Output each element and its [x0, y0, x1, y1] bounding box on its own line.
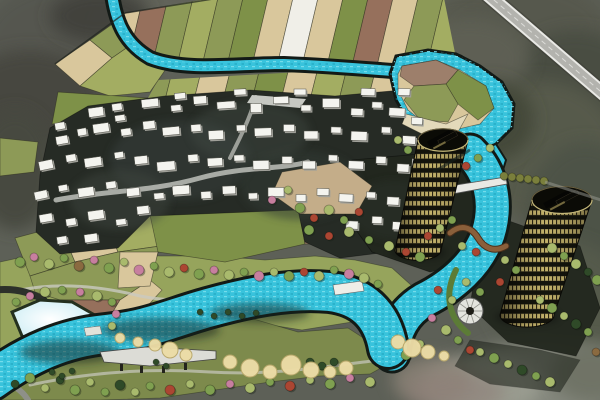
massing-building: [207, 158, 224, 168]
tree: [194, 269, 204, 279]
tree: [180, 264, 188, 272]
tree: [211, 313, 217, 319]
tree: [532, 372, 540, 380]
building-roof: [294, 89, 306, 95]
tree: [300, 268, 308, 276]
massing-building: [222, 186, 237, 196]
massing-building: [372, 216, 384, 225]
tree: [424, 232, 432, 240]
massing-building: [361, 88, 377, 97]
building-roof: [84, 233, 98, 243]
building-roof: [234, 89, 246, 96]
massing-building: [208, 130, 225, 141]
tree: [325, 232, 333, 240]
tree: [41, 384, 49, 392]
tree: [462, 278, 470, 286]
building-roof: [87, 209, 104, 220]
building-roof: [282, 157, 292, 164]
building-roof: [188, 154, 198, 162]
tree: [517, 365, 527, 375]
building-roof: [54, 122, 65, 131]
tree: [86, 378, 94, 386]
pavilion-core: [466, 307, 474, 315]
building-roof: [222, 186, 235, 194]
building-roof: [55, 135, 68, 145]
tree: [12, 298, 20, 306]
building-roof: [402, 136, 415, 145]
tree: [584, 328, 592, 336]
tree: [69, 368, 75, 374]
building-roof: [174, 93, 185, 100]
building-roof: [303, 161, 316, 169]
tree: [225, 309, 231, 315]
massing-building: [348, 161, 365, 171]
tree: [210, 266, 218, 274]
tree: [25, 373, 35, 383]
building-roof: [114, 151, 124, 158]
tree: [11, 380, 19, 388]
building-roof: [106, 181, 117, 189]
tree: [486, 144, 494, 152]
tree: [489, 353, 499, 363]
tree: [150, 262, 158, 270]
tree: [197, 309, 203, 315]
tree: [115, 380, 125, 390]
building-roof: [372, 216, 382, 223]
massing-building: [254, 128, 273, 138]
tree: [163, 363, 169, 369]
building-roof: [92, 122, 109, 133]
tree: [284, 271, 294, 281]
tree: [547, 303, 557, 313]
massing-building: [193, 95, 208, 106]
tree: [560, 252, 568, 260]
render-viewport[interactable]: [0, 0, 600, 400]
tree: [415, 252, 425, 262]
building-roof: [116, 218, 127, 225]
tree-canopy-plaza: [115, 333, 125, 343]
massing-building: [172, 185, 191, 197]
massing-building: [376, 156, 388, 165]
massing-building: [143, 120, 157, 131]
tree: [40, 287, 50, 297]
tree: [500, 172, 508, 180]
massing-building: [250, 103, 263, 114]
tree: [454, 336, 462, 344]
tree: [536, 296, 544, 304]
massing-building: [303, 161, 317, 171]
massing-building: [381, 127, 392, 135]
building-roof: [351, 131, 367, 141]
massing-building: [389, 108, 407, 118]
building-roof: [171, 104, 182, 111]
building-roof: [301, 105, 311, 111]
building-roof: [381, 127, 390, 133]
building-roof: [234, 155, 244, 161]
building-roof: [398, 88, 410, 96]
tree: [496, 278, 504, 286]
massing-building: [323, 99, 341, 110]
massing-building: [134, 155, 149, 166]
building-roof: [121, 128, 132, 136]
tree: [436, 224, 444, 232]
building-roof: [58, 184, 68, 191]
building-roof: [112, 103, 123, 111]
tree: [532, 176, 540, 184]
tree: [365, 236, 373, 244]
tree: [239, 313, 245, 319]
building-roof: [323, 99, 340, 108]
tree: [365, 377, 375, 387]
building-roof: [366, 192, 375, 198]
building-roof: [411, 117, 422, 125]
tree: [344, 269, 354, 279]
tree: [501, 256, 509, 264]
tree: [466, 346, 474, 354]
tree-canopy-plaza: [180, 349, 192, 361]
tree-canopy-plaza: [303, 362, 319, 378]
massing-building: [398, 88, 412, 97]
tree: [428, 314, 436, 322]
building-roof: [208, 130, 223, 140]
building-roof: [207, 158, 222, 167]
tree-canopy-plaza: [149, 339, 161, 351]
massing-building: [248, 193, 259, 201]
tree: [472, 248, 480, 256]
massing-building: [141, 98, 160, 109]
building-roof: [339, 194, 353, 202]
massing-building: [137, 205, 151, 216]
tree: [560, 312, 568, 320]
building-roof: [389, 108, 405, 117]
massing-building: [366, 192, 377, 200]
massing-building: [157, 161, 177, 173]
tree: [325, 379, 335, 389]
tree: [44, 259, 54, 269]
small-deck: [84, 326, 102, 336]
building-roof: [331, 127, 341, 133]
tree: [508, 173, 516, 181]
massing-building: [301, 105, 312, 113]
tree: [254, 271, 264, 281]
tree: [384, 241, 394, 251]
building-roof: [88, 106, 104, 117]
massing-building: [351, 108, 365, 117]
tree: [60, 254, 68, 262]
tree: [314, 271, 324, 281]
tree: [101, 388, 109, 396]
tree: [268, 196, 276, 204]
tree: [165, 385, 175, 395]
pier-post: [120, 364, 123, 371]
building-roof: [217, 101, 235, 109]
building-roof: [77, 128, 87, 136]
tree: [74, 261, 84, 271]
tree: [134, 265, 144, 275]
tree: [30, 253, 38, 261]
tree: [186, 380, 194, 388]
tree: [402, 248, 410, 256]
building-roof: [296, 195, 306, 202]
tree: [584, 268, 592, 276]
tree: [285, 381, 295, 391]
tree: [355, 208, 363, 216]
massing-building: [296, 195, 307, 204]
massing-building: [402, 136, 417, 146]
tree: [434, 286, 442, 294]
massing-building: [304, 131, 319, 141]
building-roof: [137, 205, 150, 214]
tree: [70, 385, 80, 395]
massing-building: [253, 160, 271, 171]
tree: [153, 359, 159, 365]
massing-building: [234, 89, 248, 97]
building-roof: [172, 185, 190, 195]
massing-building: [328, 155, 339, 163]
building-roof: [162, 126, 180, 135]
building-roof: [284, 125, 295, 132]
building-roof: [351, 108, 363, 115]
building-roof: [387, 197, 399, 206]
tree: [58, 286, 66, 294]
massing-building: [88, 106, 106, 119]
tree: [310, 214, 318, 222]
building-roof: [304, 131, 318, 139]
tree-canopy-plaza: [263, 365, 277, 379]
tree: [524, 175, 532, 183]
tree: [330, 358, 338, 366]
tree: [441, 325, 451, 335]
tree: [15, 257, 25, 267]
massing-building: [84, 233, 100, 245]
building-roof: [253, 160, 269, 169]
tree: [240, 268, 248, 276]
tree: [340, 216, 348, 224]
tree: [224, 270, 234, 280]
tree: [448, 216, 456, 224]
massing-building: [351, 131, 369, 142]
building-roof: [376, 156, 386, 163]
building-roof: [236, 125, 245, 131]
tree: [592, 275, 600, 285]
building-roof: [157, 161, 176, 172]
building-roof: [248, 193, 257, 199]
building-roof: [77, 186, 94, 197]
building-roof: [126, 187, 140, 196]
massing-building: [126, 187, 141, 198]
tree: [516, 174, 524, 182]
tree: [49, 369, 55, 375]
tree: [404, 146, 412, 154]
tree-canopy-plaza: [403, 339, 421, 357]
tree: [512, 266, 520, 274]
tree: [104, 263, 114, 273]
tree: [108, 298, 116, 306]
building-roof: [134, 155, 148, 164]
tree: [164, 267, 174, 277]
tree: [108, 322, 116, 330]
building-roof: [141, 98, 159, 108]
tree: [545, 377, 555, 387]
tree-canopy-plaza: [439, 351, 449, 361]
masterplan-3d-scene: [0, 0, 600, 400]
tree: [284, 186, 292, 194]
tree: [462, 162, 470, 170]
massing-building: [217, 101, 237, 111]
tree: [59, 373, 65, 379]
tree: [253, 310, 259, 316]
building-roof: [65, 154, 76, 163]
building-roof: [317, 188, 329, 195]
massing-building: [339, 194, 355, 204]
tree: [547, 243, 557, 253]
tree: [245, 383, 255, 393]
tree: [571, 259, 581, 269]
building-roof: [154, 193, 164, 200]
massing-building: [284, 125, 296, 134]
tree: [474, 154, 482, 162]
tree-canopy-plaza: [281, 355, 301, 375]
building-roof: [115, 114, 126, 121]
tree: [504, 360, 512, 368]
tree: [90, 256, 98, 264]
building-roof: [268, 188, 284, 197]
building-roof: [397, 164, 409, 173]
massing-building: [411, 117, 424, 126]
massing-building: [331, 127, 343, 135]
tree: [26, 292, 34, 300]
tree: [330, 266, 338, 274]
massing-building: [282, 157, 293, 166]
massing-building: [162, 126, 181, 137]
tree-canopy-plaza: [133, 337, 143, 347]
massing-building: [317, 188, 331, 197]
tree: [146, 382, 154, 390]
tree: [92, 291, 102, 301]
tree: [476, 348, 484, 356]
building-roof: [348, 161, 363, 170]
building-roof: [57, 236, 68, 244]
tree: [359, 273, 369, 283]
tree-canopy-plaza: [241, 359, 259, 377]
tree: [592, 348, 600, 356]
building-roof: [254, 128, 271, 137]
building-roof: [372, 102, 382, 108]
pier-post: [184, 363, 187, 370]
tree: [374, 280, 382, 288]
building-roof: [143, 120, 156, 129]
building-roof: [66, 218, 77, 226]
tree: [112, 310, 120, 318]
building-roof: [201, 191, 211, 199]
tree-canopy-plaza: [162, 342, 178, 358]
tree: [571, 319, 581, 329]
tree-canopy-plaza: [324, 366, 336, 378]
field-parcel: [0, 138, 38, 176]
tree: [344, 227, 354, 237]
tree: [270, 268, 278, 276]
tree: [226, 380, 234, 388]
tree: [476, 288, 484, 296]
massing-building: [372, 102, 384, 110]
massing-building: [234, 155, 246, 163]
building-roof: [273, 96, 288, 104]
tree-canopy-plaza: [223, 355, 237, 369]
building-roof: [361, 88, 375, 95]
massing-building: [273, 96, 290, 105]
tree: [295, 203, 305, 213]
building-roof: [191, 124, 201, 132]
building-roof: [250, 103, 261, 112]
massing-building: [397, 164, 411, 174]
building-roof: [328, 155, 337, 161]
tree: [304, 225, 314, 235]
building-roof: [193, 96, 207, 105]
tree: [458, 242, 466, 250]
tree-canopy-plaza: [339, 361, 353, 375]
tree: [448, 296, 456, 304]
tree: [205, 385, 215, 395]
tree: [131, 388, 139, 396]
tree: [394, 136, 402, 144]
tree-canopy-plaza: [421, 345, 435, 359]
pier-post: [140, 366, 143, 373]
tree: [120, 258, 128, 266]
massing-building: [387, 197, 401, 207]
tree: [324, 205, 334, 215]
massing-building: [294, 89, 307, 97]
tree: [76, 288, 84, 296]
